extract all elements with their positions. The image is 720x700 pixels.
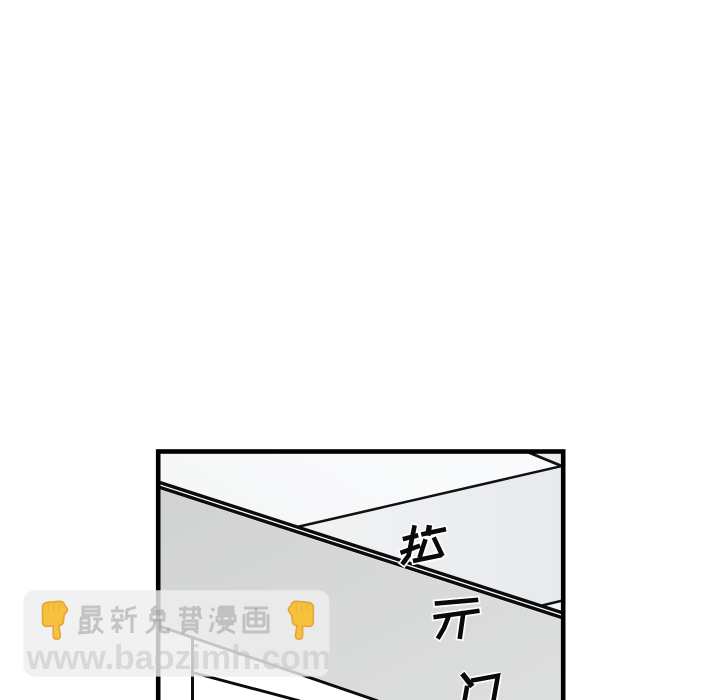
svg-text:www.baozimh.com: www.baozimh.com: [26, 639, 332, 677]
